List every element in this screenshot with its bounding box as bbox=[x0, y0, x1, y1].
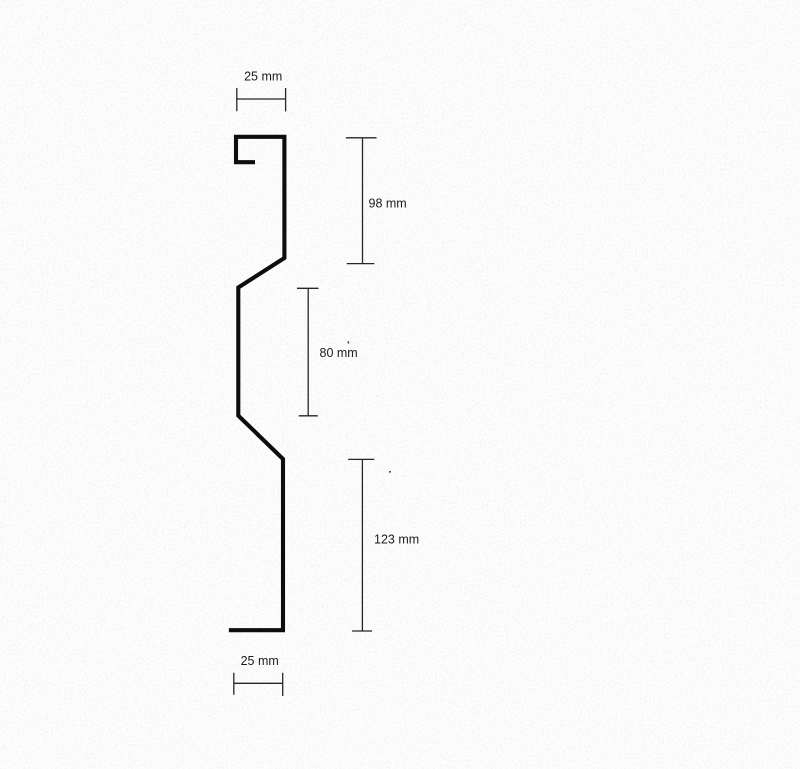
svg-text:25 mm: 25 mm bbox=[244, 70, 282, 84]
svg-text:25 mm: 25 mm bbox=[241, 654, 279, 668]
svg-text:123 mm: 123 mm bbox=[374, 532, 419, 546]
svg-text:98 mm: 98 mm bbox=[369, 197, 407, 211]
svg-text:80 mm: 80 mm bbox=[320, 346, 358, 360]
